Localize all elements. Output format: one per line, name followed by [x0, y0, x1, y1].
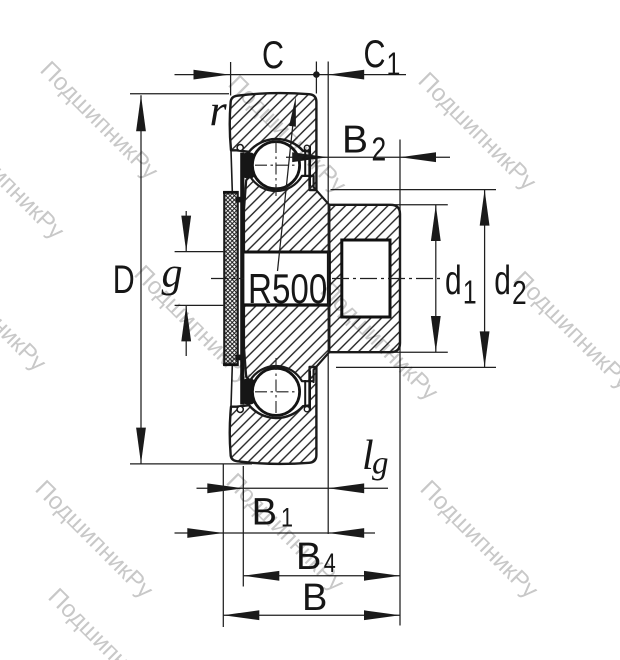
svg-text:g: g — [372, 446, 389, 482]
svg-text:C: C — [364, 32, 386, 75]
svg-text:1: 1 — [387, 47, 401, 83]
svg-text:d: d — [445, 257, 462, 303]
svg-text:r: r — [210, 86, 228, 135]
svg-text:C: C — [262, 33, 284, 76]
svg-text:R500: R500 — [248, 266, 327, 313]
svg-text:d: d — [494, 257, 511, 303]
svg-text:2: 2 — [372, 132, 387, 168]
svg-text:1: 1 — [463, 275, 477, 311]
svg-text:B: B — [342, 119, 368, 162]
